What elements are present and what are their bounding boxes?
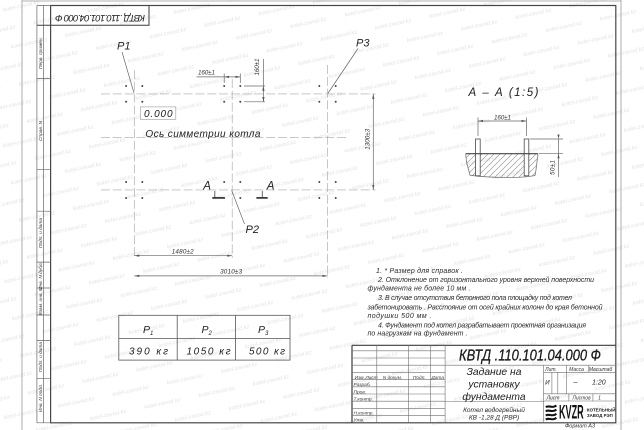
- svg-text:Инв. N подл.: Инв. N подл.: [38, 384, 44, 412]
- svg-text:Листов: Листов: [571, 396, 591, 402]
- svg-text:забетонировать . Расстояние от: забетонировать . Расстояние от осей край…: [367, 303, 603, 311]
- svg-text:Подп. и дата: Подп. и дата: [38, 218, 44, 248]
- svg-text:1. * Размер для справок .: 1. * Размер для справок .: [376, 267, 463, 275]
- svg-text:N докум.: N докум.: [383, 375, 402, 381]
- svg-text:фундамента не более 10 мм .: фундамента не более 10 мм .: [368, 285, 471, 293]
- svg-text:1: 1: [598, 396, 601, 402]
- svg-text:Подп.: Подп.: [413, 375, 426, 381]
- svg-text:2. Отклонение от горизонтально: 2. Отклонение от горизонтального уровня …: [377, 276, 594, 284]
- svg-text:Лит.: Лит.: [544, 367, 557, 373]
- svg-text:Ось симметрии котла: Ось симметрии котла: [145, 129, 260, 140]
- svg-text:КВТД .110.101.04.000 Ф: КВТД .110.101.04.000 Ф: [55, 12, 145, 23]
- svg-text:установку: установку: [467, 380, 520, 391]
- svg-text:1050 кг: 1050 кг: [187, 347, 231, 358]
- svg-text:Перв. примен.: Перв. примен.: [38, 37, 44, 69]
- svg-text:Пров.: Пров.: [354, 389, 367, 395]
- svg-text:0.000: 0.000: [144, 109, 173, 120]
- svg-text:Дата: Дата: [430, 375, 444, 381]
- svg-text:1:20: 1:20: [592, 380, 606, 387]
- svg-text:Подп. и дата: Подп. и дата: [38, 342, 44, 372]
- svg-text:Формат А3: Формат А3: [565, 423, 596, 429]
- svg-text:3010±3: 3010±3: [220, 269, 242, 276]
- svg-text:4. Фундамент под котел разраба: 4. Фундамент под котел разрабатывает про…: [378, 322, 586, 330]
- svg-text:Взам. инв. N: Взам. инв. N: [38, 287, 44, 315]
- svg-text:Масштаб: Масштаб: [589, 367, 613, 373]
- svg-text:подушки 500 мм .: подушки 500 мм .: [368, 312, 432, 320]
- svg-text:160±1: 160±1: [494, 114, 511, 121]
- svg-text:И: И: [545, 380, 550, 387]
- svg-text:50±1: 50±1: [550, 160, 557, 175]
- svg-text:160±1: 160±1: [254, 59, 261, 76]
- svg-text:160±1: 160±1: [198, 70, 215, 77]
- svg-text:Р3: Р3: [356, 38, 370, 50]
- svg-text:А: А: [202, 181, 211, 193]
- svg-text:по нагрузкам на фундамент .: по нагрузкам на фундамент .: [368, 330, 468, 338]
- svg-text:Масса: Масса: [569, 367, 584, 373]
- svg-text:Задание на: Задание на: [467, 367, 522, 378]
- svg-text:ЗАВОД РЭП: ЗАВОД РЭП: [587, 413, 613, 418]
- svg-text:Котел водогрейный: Котел водогрейный: [463, 406, 525, 414]
- svg-text:Справ. N: Справ. N: [38, 120, 44, 141]
- svg-text:500 кг: 500 кг: [249, 347, 285, 358]
- svg-text:Н.контр.: Н.контр.: [354, 410, 374, 416]
- svg-text:КВ -1,28 Д (РВР): КВ -1,28 Д (РВР): [469, 415, 519, 422]
- svg-text:А: А: [266, 181, 275, 193]
- svg-text:Утв.: Утв.: [354, 417, 365, 423]
- svg-text:3. В случае отсутствия бетонно: 3. В случае отсутствия бетонного пола пл…: [378, 294, 572, 302]
- svg-text:КОТЕЛЬНЫЙ: КОТЕЛЬНЫЙ: [587, 408, 616, 413]
- svg-text:–: –: [572, 377, 578, 386]
- svg-text:фундамента: фундамента: [462, 391, 526, 403]
- svg-text:1300±3: 1300±3: [364, 128, 371, 149]
- svg-text:Разраб.: Разраб.: [354, 382, 371, 388]
- svg-text:Т.контр.: Т.контр.: [354, 396, 373, 402]
- svg-text:Р1: Р1: [117, 41, 130, 53]
- svg-text:KVZR: KVZR: [559, 402, 584, 424]
- svg-text:Изм.: Изм.: [355, 375, 365, 381]
- svg-text:Инв. N дубл.: Инв. N дубл.: [38, 262, 44, 290]
- svg-text:Лист: Лист: [364, 375, 377, 381]
- svg-text:1480±2: 1480±2: [172, 248, 194, 255]
- svg-text:Лист: Лист: [546, 396, 560, 402]
- svg-text:Р2: Р2: [246, 224, 259, 236]
- svg-text:КВТД .110.101.04.000 Ф: КВТД .110.101.04.000 Ф: [459, 347, 601, 365]
